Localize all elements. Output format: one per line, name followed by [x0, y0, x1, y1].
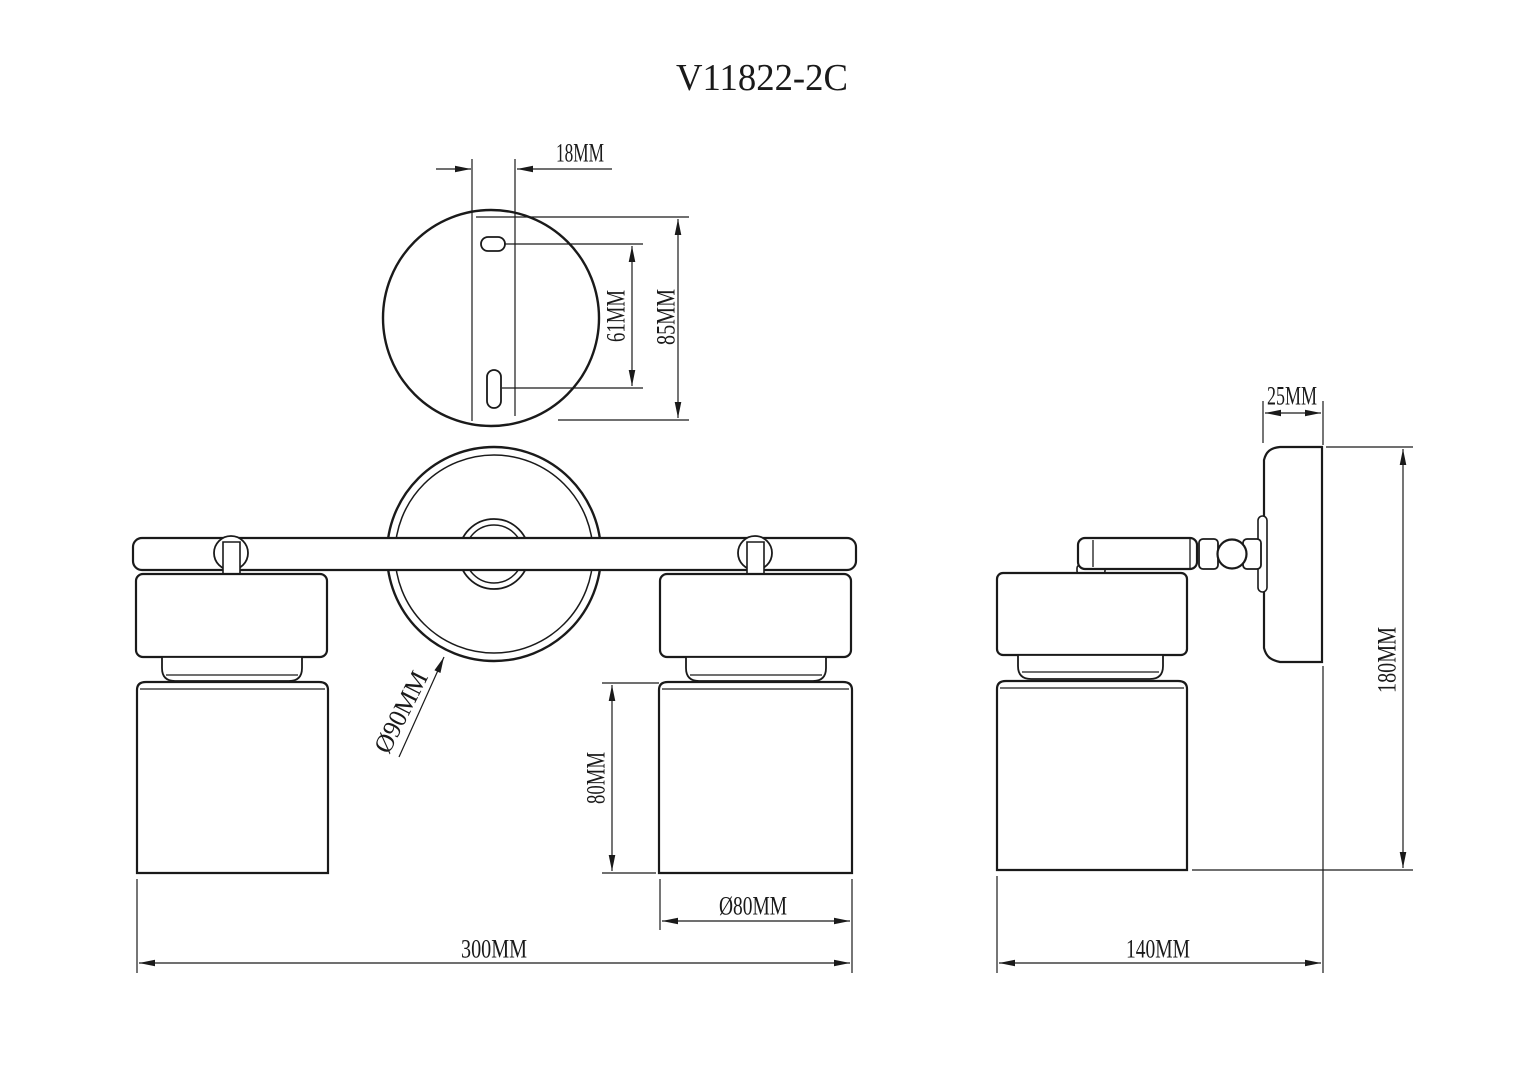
dim-18mm: 18MM — [436, 139, 612, 170]
side-wall-plate — [1264, 447, 1322, 662]
front-left-pivot-stem — [223, 542, 240, 575]
front-right-pivot-stem — [747, 542, 764, 575]
side-ball-joint — [1218, 540, 1247, 569]
drawing-svg: V11822-2C 18MM 61MM 85MM — [0, 0, 1527, 1080]
top-view-backplate-circle — [383, 210, 599, 426]
dim-85mm-label: 85MM — [652, 289, 681, 345]
dim-61mm: 61MM — [502, 244, 643, 388]
drawing-title: V11822-2C — [676, 57, 848, 99]
dim-80mm-height-label: 80MM — [582, 752, 611, 804]
dim-140mm-label: 140MM — [1126, 935, 1190, 964]
side-lamp-neck — [1018, 655, 1163, 679]
side-joint-connector-outer — [1199, 539, 1218, 569]
top-view: 18MM 61MM 85MM — [383, 139, 689, 427]
front-right-lamp-neck — [686, 657, 826, 681]
dim-90mm-label: Ø90MM — [368, 666, 434, 758]
side-lamp-shade — [997, 681, 1187, 870]
side-view: 25MM 180MM 140MM — [997, 382, 1413, 974]
dim-80mm-diameter-label: Ø80MM — [719, 892, 787, 921]
technical-drawing-sheet: V11822-2C 18MM 61MM 85MM — [0, 0, 1527, 1080]
dim-300mm-label: 300MM — [461, 935, 527, 964]
front-left-lamp-head — [136, 574, 327, 657]
dim-80mm-height: 80MM — [582, 683, 660, 873]
dim-80mm-diameter: Ø80MM — [660, 879, 852, 973]
dim-25mm-label: 25MM — [1267, 382, 1317, 411]
side-lamp — [997, 573, 1187, 870]
top-view-keyhole-slot-upper — [481, 237, 505, 251]
dim-90mm: Ø90MM — [368, 657, 444, 758]
front-left-lamp-shade — [137, 682, 328, 873]
front-left-lamp-neck — [162, 657, 302, 681]
top-view-keyhole-slot-lower — [487, 370, 501, 408]
dim-25mm: 25MM — [1263, 382, 1323, 446]
front-right-lamp-shade — [659, 682, 852, 873]
dim-18mm-label: 18MM — [556, 139, 604, 168]
dim-61mm-label: 61MM — [602, 290, 631, 342]
side-arm-bar — [1078, 538, 1197, 569]
front-right-lamp — [659, 574, 852, 873]
front-left-lamp — [136, 574, 328, 873]
dim-85mm: 85MM — [476, 217, 689, 420]
side-lamp-head — [997, 573, 1187, 655]
front-right-lamp-head — [660, 574, 851, 657]
front-view: Ø90MM 80MM Ø80MM 300MM — [133, 447, 856, 973]
dim-180mm-label: 180MM — [1373, 627, 1402, 693]
